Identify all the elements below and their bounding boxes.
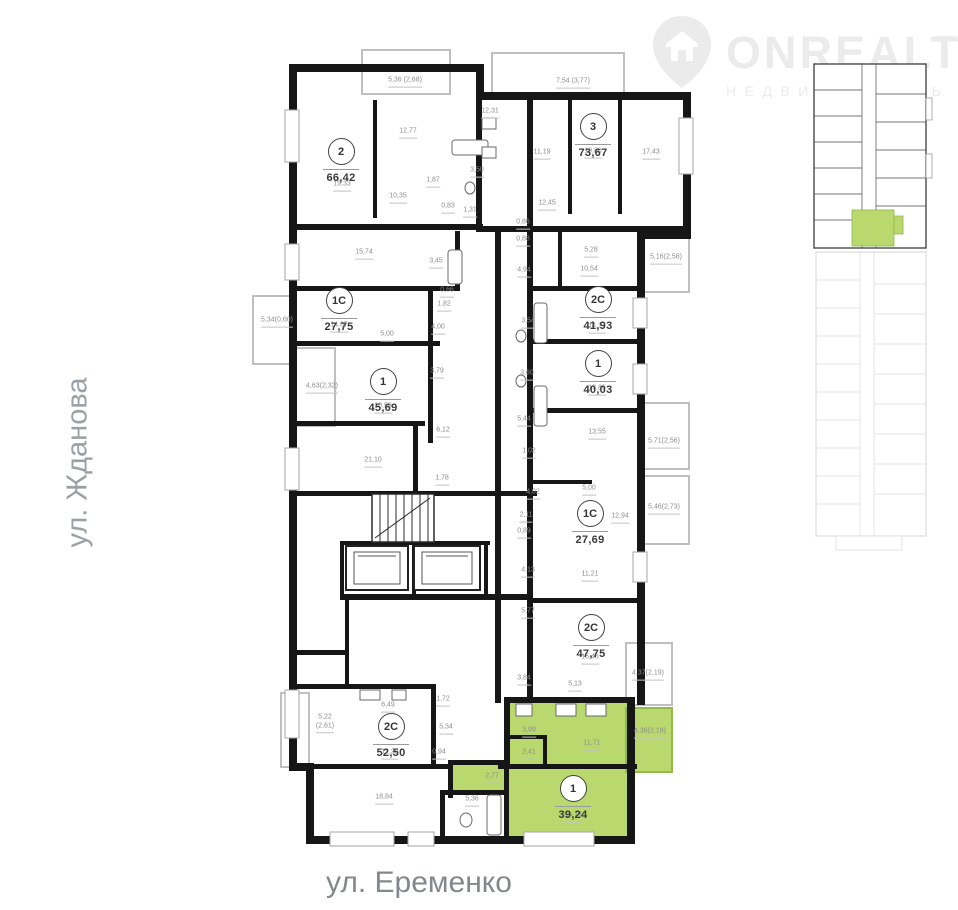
toilet-icon: [460, 813, 472, 827]
unit-total-area: 66,42: [326, 172, 355, 184]
room-area-label: 12,45: [538, 200, 556, 211]
room-area-label: 1,82: [437, 301, 451, 312]
unit-badge[interactable]: 2С52,50: [373, 713, 409, 759]
unit-total-area: 27,69: [575, 534, 604, 546]
room-area-label: 11,71: [584, 740, 601, 751]
room-area-label: 5,34(0,60): [261, 317, 293, 328]
room-area-label: 5,34: [439, 724, 453, 735]
room-area-label: 1,87: [426, 177, 440, 188]
room-area-label: 4,00: [431, 324, 445, 335]
room-area-label: 5,00: [380, 331, 394, 342]
badge-divider: [323, 169, 359, 170]
room-area-label: 5,77: [521, 608, 535, 619]
room-area-label: 10,54: [580, 266, 598, 277]
minimap-highlight-balcony: [894, 216, 903, 234]
unit-number: 1: [370, 368, 397, 395]
room-area-label: 6,49: [381, 702, 395, 713]
room-area-label: 5,36 (2,68): [388, 77, 422, 88]
unit-badge[interactable]: 2С47,75: [573, 614, 609, 660]
room-area-label: 5,71(2,56): [648, 438, 680, 449]
room-area-label: 11,21: [582, 571, 599, 582]
room-area-label: 3,50: [470, 167, 484, 178]
room-area-label: 3,54: [521, 318, 535, 329]
room-area-label: 0,83: [441, 203, 455, 214]
room-area-label: 12,94: [611, 513, 629, 524]
badge-divider: [580, 317, 616, 318]
unit-number: 2С: [378, 713, 405, 740]
room-area-label: 2,11: [519, 512, 532, 523]
fridge-icon: [586, 704, 606, 716]
badge-divider: [580, 381, 616, 382]
room-area-label: 4,02: [526, 489, 540, 500]
bathtub-icon: [448, 250, 462, 284]
stove-icon: [360, 690, 380, 700]
unit-total-area: 40,03: [583, 384, 612, 396]
unit-total-area: 52,50: [376, 747, 405, 759]
unit-badge[interactable]: 2С41,93: [580, 286, 616, 332]
room-area-label: 0,86: [516, 219, 530, 230]
room-area-label: 5,22 (2,61): [316, 713, 334, 733]
room-area-label: 1,31: [463, 207, 477, 218]
elevator-icon: [346, 546, 408, 590]
page: { "logo": { "brand": "ONREALT", "tagline…: [0, 0, 958, 910]
unit-badge[interactable]: 139,24: [555, 775, 591, 821]
room-area-label: 3,79: [430, 368, 444, 379]
stove-icon: [556, 704, 576, 716]
room-area-label: 13,55: [588, 429, 606, 440]
room-area-label: 4,37(2,19): [632, 670, 664, 681]
room-area-label: 12,31: [481, 108, 499, 119]
room-area-label: 17,43: [642, 149, 660, 160]
room-area-label: 0,94: [432, 749, 446, 760]
room-area-label: 21,10: [364, 457, 382, 468]
unit-number: 2С: [578, 614, 605, 641]
room-area-label: 3,84: [517, 675, 531, 686]
room-area-label: 5,46(2,73): [648, 504, 680, 515]
badge-divider: [555, 806, 591, 807]
room-area-label: 0,66: [440, 287, 454, 298]
badge-divider: [573, 645, 609, 646]
badge-divider: [321, 318, 357, 319]
unit-total-area: 45,69: [368, 402, 397, 414]
stove-icon: [482, 118, 496, 129]
unit-number: 3: [580, 113, 607, 140]
room-area-label: 11,19: [534, 149, 551, 160]
balcony-outline: [253, 296, 291, 364]
sink-icon: [516, 704, 532, 716]
room-area-label: 5,28: [584, 247, 598, 258]
bathtub-icon: [534, 386, 547, 426]
room-area-label: 1,72: [436, 696, 450, 707]
room-area-label: 4,13: [521, 567, 535, 578]
minimap-active-section[interactable]: [814, 64, 932, 248]
room-area-label: 6,12: [436, 427, 450, 438]
room-area-label: 4,36(2,18): [634, 728, 666, 739]
unit-number: 1С: [577, 500, 604, 527]
unit-number: 2: [328, 138, 355, 165]
room-area-label: 15,74: [355, 249, 373, 260]
bathtub-icon: [487, 795, 501, 835]
room-area-label: 10,35: [389, 193, 407, 204]
unit-total-area: 41,93: [583, 320, 612, 332]
minimap-highlight[interactable]: [852, 210, 894, 246]
badge-divider: [572, 531, 608, 532]
room-area-label: 5,36: [465, 796, 479, 807]
unit-badge[interactable]: 145,69: [365, 368, 401, 414]
room-area-label: 4,94: [517, 267, 531, 278]
unit-number: 1С: [326, 287, 353, 314]
unit-total-area: 47,75: [576, 648, 605, 660]
unit-badge[interactable]: 140,03: [580, 350, 616, 396]
room-area-label: 3,99: [522, 727, 536, 738]
badge-divider: [365, 399, 401, 400]
room-area-label: 5,44: [517, 416, 531, 427]
unit-number: 2С: [585, 286, 612, 313]
room-area-label: 7,54 (3,77): [556, 78, 590, 89]
bathtub-icon: [534, 303, 547, 343]
unit-badge[interactable]: 266,42: [323, 138, 359, 184]
room-area-label: 1,78: [435, 475, 449, 486]
elevator-icon: [414, 546, 480, 590]
room-area-label: 0,88: [516, 236, 530, 247]
room-area-label: 18,84: [375, 794, 393, 805]
room-area-label: 1,02: [522, 448, 536, 459]
minimap-faded-section[interactable]: [816, 252, 926, 550]
unit-badge[interactable]: 1С27,75: [321, 287, 357, 333]
room-area-label: 12,77: [399, 128, 417, 139]
unit-number: 1: [560, 775, 587, 802]
stairs-icon: [372, 494, 434, 542]
balcony-outline: [643, 403, 689, 469]
unit-number: 1: [585, 350, 612, 377]
room-area-label: 3,60: [520, 370, 534, 381]
room-area-label: 3,45: [429, 258, 443, 269]
room-area-label: 5,13: [568, 681, 582, 692]
toilet-icon: [465, 182, 475, 194]
room-area-label: 0,89: [517, 528, 531, 539]
badge-divider: [373, 744, 409, 745]
room-area-label: 5,00: [582, 485, 596, 496]
badge-divider: [575, 144, 611, 145]
room-area-label: 2,77: [485, 773, 499, 784]
sink-icon: [482, 147, 496, 158]
unit-badge[interactable]: 373,67: [575, 113, 611, 159]
unit-total-area: 39,24: [558, 809, 587, 821]
room-area-label: 5,16(2,58): [650, 254, 682, 265]
toilet-icon: [516, 330, 526, 342]
unit-badge[interactable]: 1С27,69: [572, 500, 608, 546]
building-minimap[interactable]: [790, 50, 950, 595]
unit-total-area: 27,75: [324, 321, 353, 333]
room-area-label: 4,63(2,32): [306, 383, 338, 394]
sink-icon: [392, 690, 406, 700]
unit-total-area: 73,67: [578, 147, 607, 159]
highlighted-apartment-area[interactable]: [452, 700, 632, 841]
room-area-label: 2,41: [522, 749, 536, 760]
